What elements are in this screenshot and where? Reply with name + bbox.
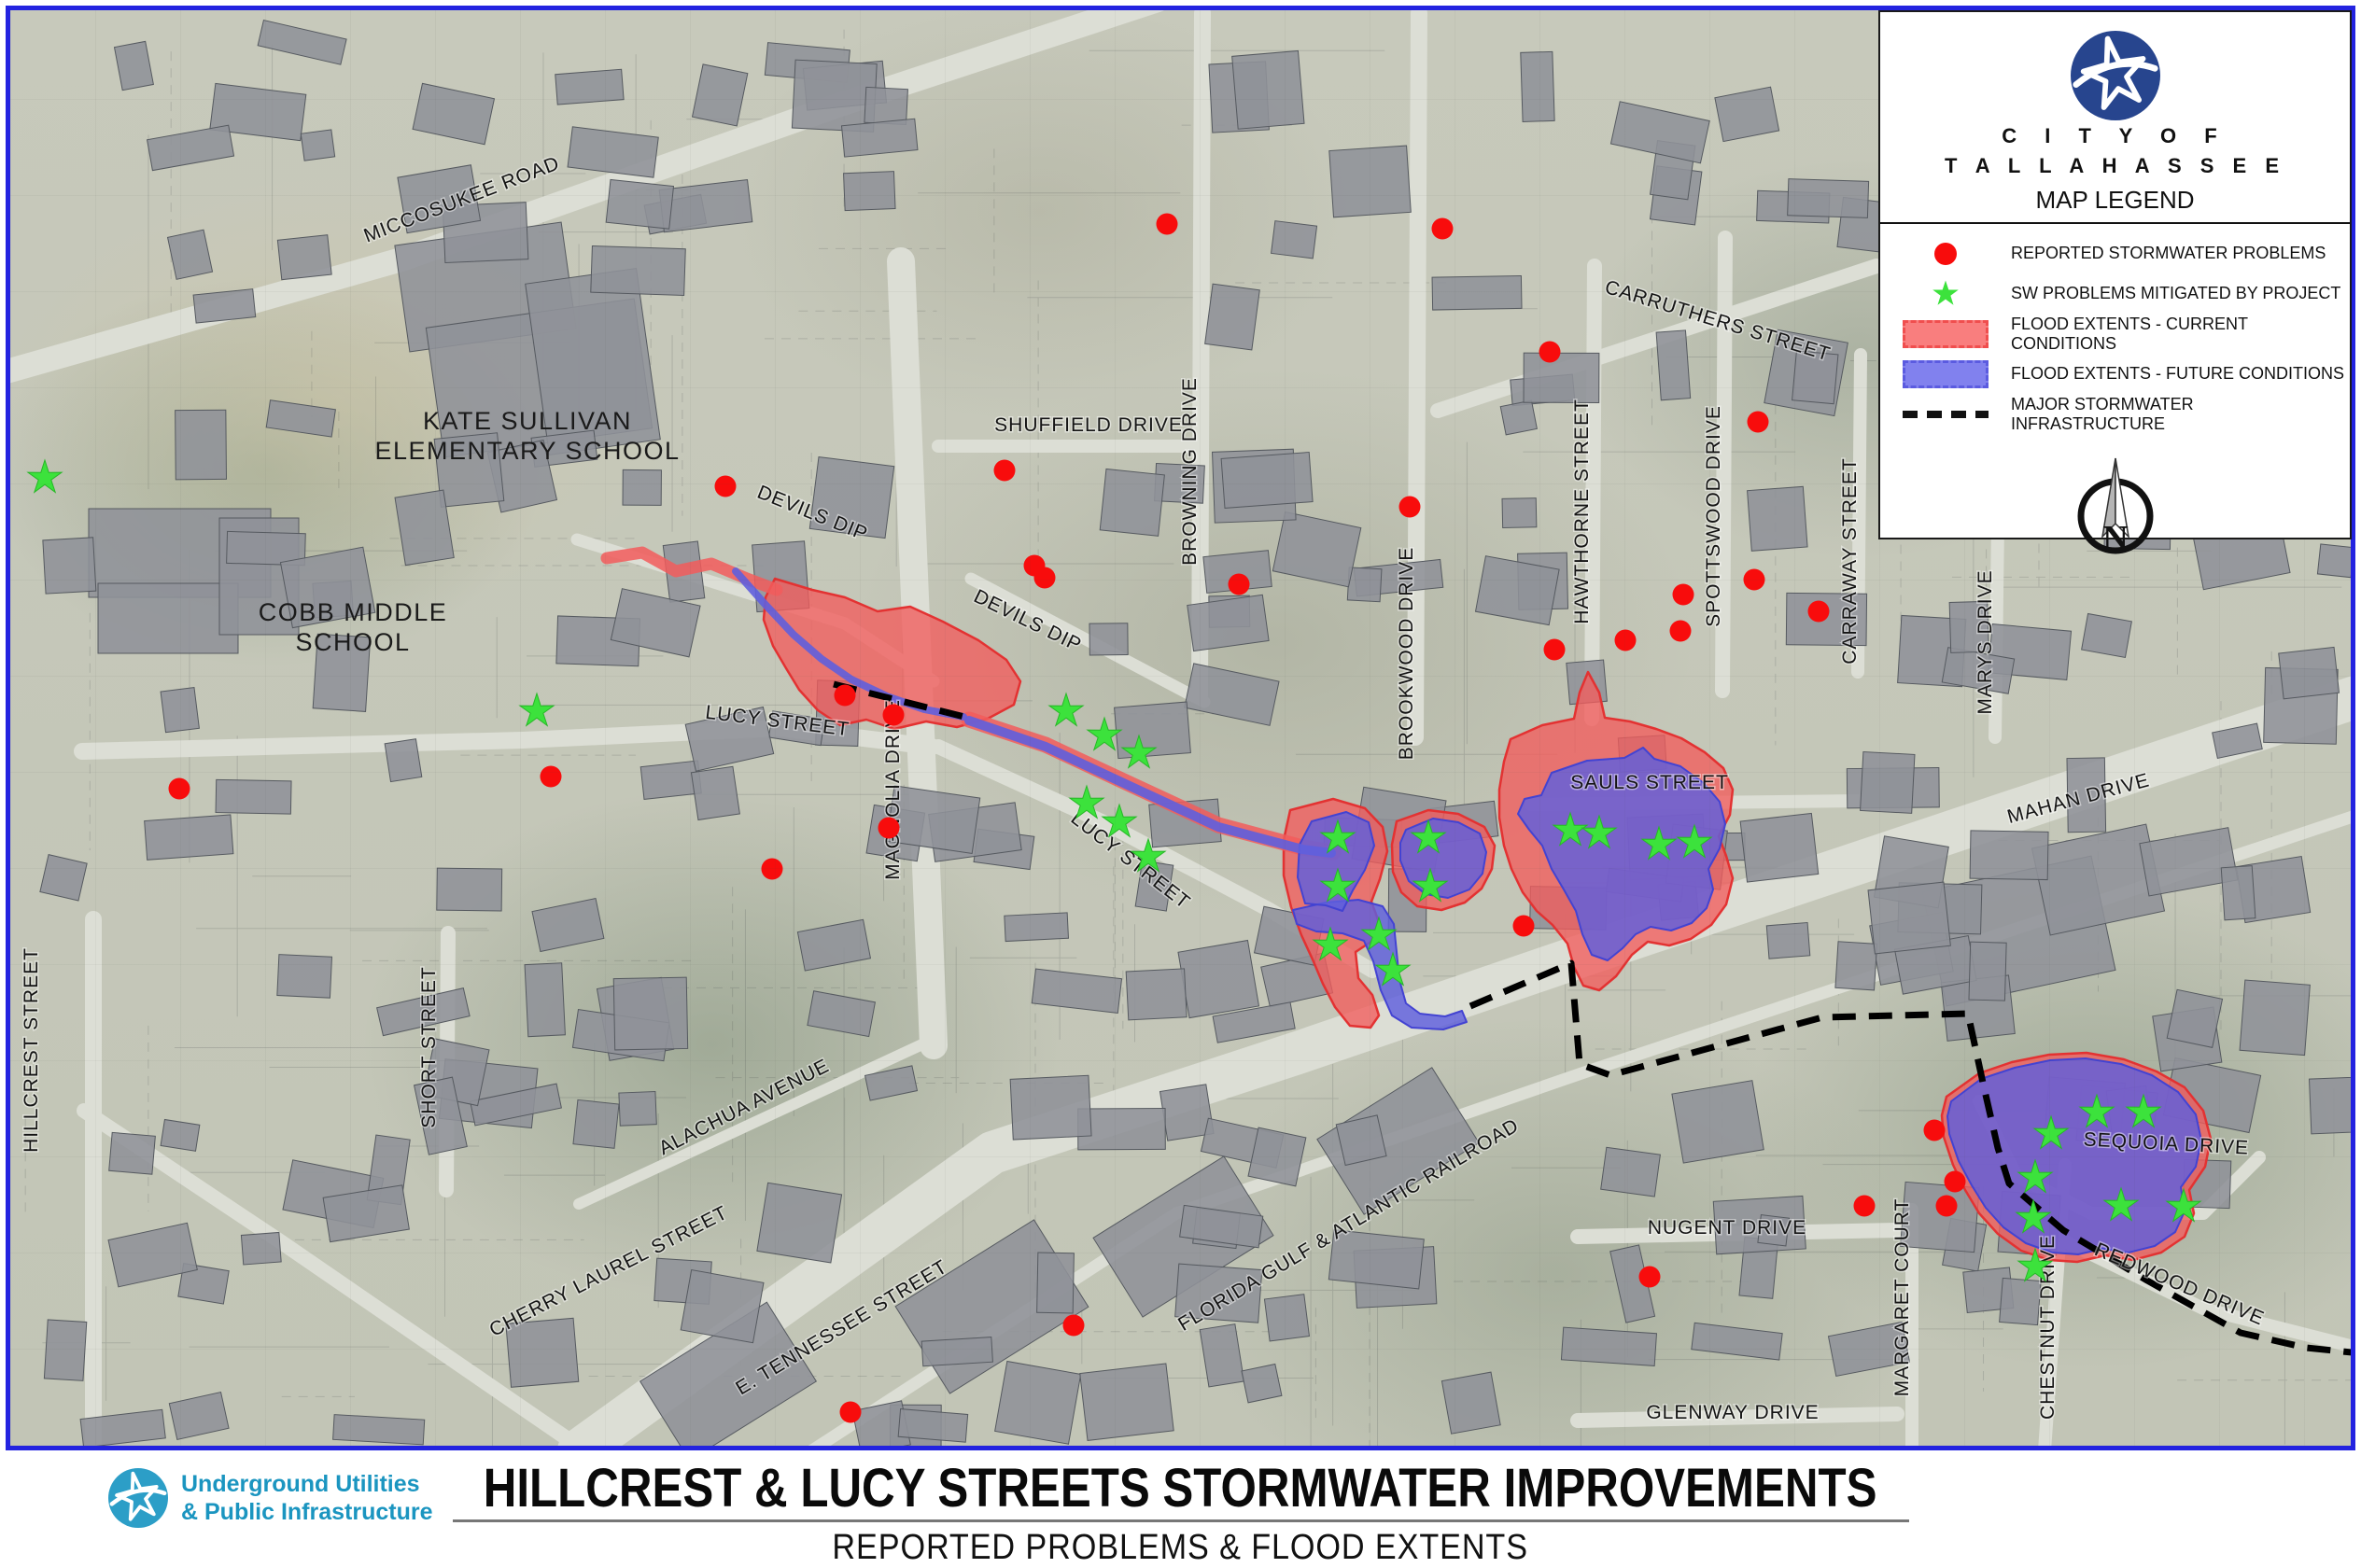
street-label: MARYS DRIVE: [1975, 569, 1996, 714]
svg-text:N: N: [2102, 519, 2128, 558]
reported-problem-dot: [1157, 214, 1178, 235]
legend-icon-cell: [1880, 411, 2011, 418]
city-of-tallahassee-logo-icon: [2071, 31, 2160, 120]
street-label: SHORT STREET: [418, 966, 440, 1127]
mitigated-problem-star: [520, 693, 554, 725]
flood-future-swatch-icon: [1903, 360, 1989, 388]
reported-problem-dot: [541, 766, 562, 788]
reported-problem-dot: [1808, 601, 1830, 623]
legend-divider: [1880, 222, 2350, 224]
reported-problem-dot: [1936, 1196, 1958, 1217]
green-star-icon: [1930, 278, 1961, 310]
north-arrow-icon: N: [2059, 455, 2171, 567]
reported-problem-dot: [169, 778, 190, 800]
reported-problem-dot: [1639, 1267, 1661, 1288]
reported-problem-dot: [883, 705, 905, 726]
title-divider: [453, 1519, 1909, 1522]
map-legend: C I T Y O F T A L L A H A S S E E MAP LE…: [1878, 10, 2352, 539]
reported-problem-dot: [878, 818, 900, 839]
reported-problem-dot: [1924, 1120, 1946, 1141]
street-label: SAULS STREET: [1570, 772, 1729, 793]
street-label: CARRAWAY STREET: [1839, 457, 1861, 665]
reported-problem-dot: [1063, 1315, 1085, 1337]
plan-sheet: MICCOSUKEE ROADSHUFFIELD DRIVECARRUTHERS…: [0, 0, 2361, 1568]
red-dot-icon: [1934, 243, 1957, 265]
reported-problem-dot: [1034, 567, 1056, 589]
legend-item: FLOOD EXTENTS - CURRENT CONDITIONS: [1880, 314, 2350, 354]
reported-problem-dot: [1854, 1196, 1876, 1217]
legend-icon-cell: [1880, 243, 2011, 265]
reported-problem-dot: [1748, 412, 1769, 433]
legend-icon-cell: [1880, 320, 2011, 348]
mitigated-problem-star: [28, 460, 62, 492]
street-label: BROOKWOOD DRIVE: [1396, 547, 1417, 761]
reported-problem-dot: [715, 476, 737, 497]
legend-item: MAJOR STORMWATER INFRASTRUCTURE: [1880, 394, 2350, 434]
mitigated-problem-star: [1049, 693, 1083, 725]
legend-item: FLOOD EXTENTS - FUTURE CONDITIONS: [1880, 354, 2350, 394]
legend-item-list: REPORTED STORMWATER PROBLEMSSW PROBLEMS …: [1880, 233, 2350, 434]
legend-org-line2: T A L L A H A S S E E: [1880, 154, 2350, 178]
title-block: Underground Utilities & Public Infrastru…: [0, 1453, 2361, 1568]
street-label: ALACHUA AVENUE: [655, 1055, 833, 1159]
reported-problem-dot: [994, 460, 1016, 482]
reported-problem-dot: [1673, 584, 1694, 606]
legend-org-name: C I T Y O F T A L L A H A S S E E: [1880, 124, 2350, 178]
flood-current-swatch-icon: [1903, 320, 1989, 348]
reported-problem-dot: [1544, 639, 1566, 661]
legend-item-label: FLOOD EXTENTS - FUTURE CONDITIONS: [2011, 364, 2344, 384]
legend-title: MAP LEGEND: [1880, 186, 2350, 215]
street-label: MAGNOLIA DRIVE: [882, 699, 904, 880]
street-label: SPOTTSWOOD DRIVE: [1703, 405, 1724, 627]
street-label: HILLCREST STREET: [21, 947, 42, 1153]
legend-icon-cell: [1880, 278, 2011, 310]
street-label: GLENWAY DRIVE: [1646, 1402, 1819, 1423]
reported-problem-dot: [1539, 342, 1561, 363]
legend-item-label: REPORTED STORMWATER PROBLEMS: [2011, 244, 2326, 263]
reported-problem-dot: [1945, 1171, 1966, 1193]
legend-item: REPORTED STORMWATER PROBLEMS: [1880, 233, 2350, 273]
dashed-line-icon: [1903, 411, 1989, 418]
street-label: MARGARET COURT: [1891, 1198, 1913, 1397]
street-label: REDWOOD DRIVE: [2091, 1239, 2267, 1329]
street-label: BROWNING DRIVE: [1179, 377, 1201, 566]
reported-problem-dot: [1399, 497, 1421, 518]
sheet-title: HILLCREST & LUCY STREETS STORMWATER IMPR…: [484, 1457, 1877, 1519]
street-label: NUGENT DRIVE: [1648, 1217, 1806, 1239]
sheet-subtitle: REPORTED PROBLEMS & FLOOD EXTENTS: [833, 1528, 1529, 1568]
legend-item: SW PROBLEMS MITIGATED BY PROJECT: [1880, 273, 2350, 314]
legend-icon-cell: [1880, 360, 2011, 388]
street-label: SHUFFIELD DRIVE: [994, 414, 1183, 436]
reported-problem-dot: [840, 1402, 862, 1423]
reported-problem-dot: [1229, 574, 1250, 595]
reported-problem-dot: [1432, 218, 1454, 240]
legend-item-label: MAJOR STORMWATER INFRASTRUCTURE: [2011, 395, 2350, 434]
reported-problem-dot: [1513, 916, 1535, 937]
reported-problem-dot: [835, 685, 856, 707]
legend-org-line1: C I T Y O F: [1880, 124, 2350, 148]
street-label: HAWTHORNE STREET: [1571, 399, 1593, 624]
reported-problem-dot: [1615, 630, 1637, 651]
legend-item-label: SW PROBLEMS MITIGATED BY PROJECT: [2011, 284, 2340, 303]
legend-item-label: FLOOD EXTENTS - CURRENT CONDITIONS: [2011, 315, 2350, 354]
reported-problem-dot: [1744, 569, 1765, 591]
reported-problem-dot: [762, 859, 783, 880]
reported-problem-dot: [1670, 621, 1692, 642]
